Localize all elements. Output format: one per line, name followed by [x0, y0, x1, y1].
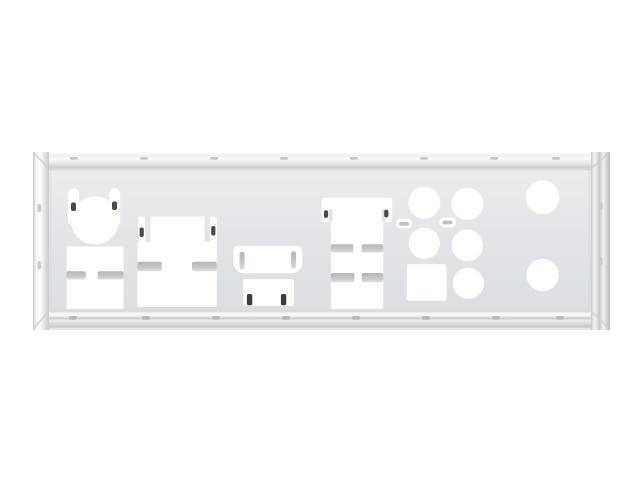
- usb-stack-cutout-left: [67, 247, 124, 310]
- spring-hook: [291, 251, 296, 268]
- audio-jack-cutout: [408, 187, 440, 219]
- audio-jack-cutout: [409, 228, 440, 259]
- io-shield-plate: [33, 152, 610, 330]
- small-port-cutout: [243, 279, 294, 306]
- optical-spdif-cutout: [407, 264, 447, 301]
- spring-tab-tip: [211, 226, 215, 236]
- spring-hook: [240, 252, 245, 270]
- antenna-hole-bottom: [527, 259, 559, 291]
- audio-jack-cutout: [452, 230, 484, 262]
- separator-finger: [67, 271, 86, 279]
- hdmi-port-cutout: [233, 246, 302, 273]
- vent-slot-left: [396, 219, 412, 229]
- separator-finger: [192, 262, 217, 272]
- punched-bar: [399, 222, 409, 226]
- separator-finger: [362, 273, 384, 282]
- left-flange: [33, 152, 49, 330]
- antenna-hole-top: [526, 181, 560, 215]
- right-flange: [591, 152, 610, 330]
- separator-finger: [137, 262, 161, 272]
- spring-tab-tip: [384, 210, 388, 218]
- separator-finger: [362, 244, 384, 252]
- top-flange: [33, 152, 610, 169]
- spring-tab-tip: [71, 203, 76, 212]
- bent-tab-tip: [247, 294, 252, 305]
- plate-face: [49, 168, 591, 312]
- punched-bar: [442, 221, 452, 225]
- spring-tab-tip: [140, 228, 144, 238]
- bent-tab-tip: [281, 294, 286, 305]
- audio-jack-cutout: [453, 268, 484, 299]
- spring-tab-tip: [112, 202, 117, 211]
- separator-finger: [331, 244, 353, 252]
- audio-jack-cutout: [451, 188, 483, 220]
- bottom-flange: [33, 311, 610, 329]
- separator-finger: [331, 273, 354, 282]
- lan-usb-cutout: [322, 198, 393, 309]
- io-shield-illustration: [0, 0, 640, 480]
- tab-notch: [329, 209, 333, 222]
- separator-finger: [98, 271, 124, 279]
- spring-tab-tip: [324, 210, 328, 218]
- photo-stage: [0, 0, 640, 480]
- vent-slot-right: [439, 217, 455, 227]
